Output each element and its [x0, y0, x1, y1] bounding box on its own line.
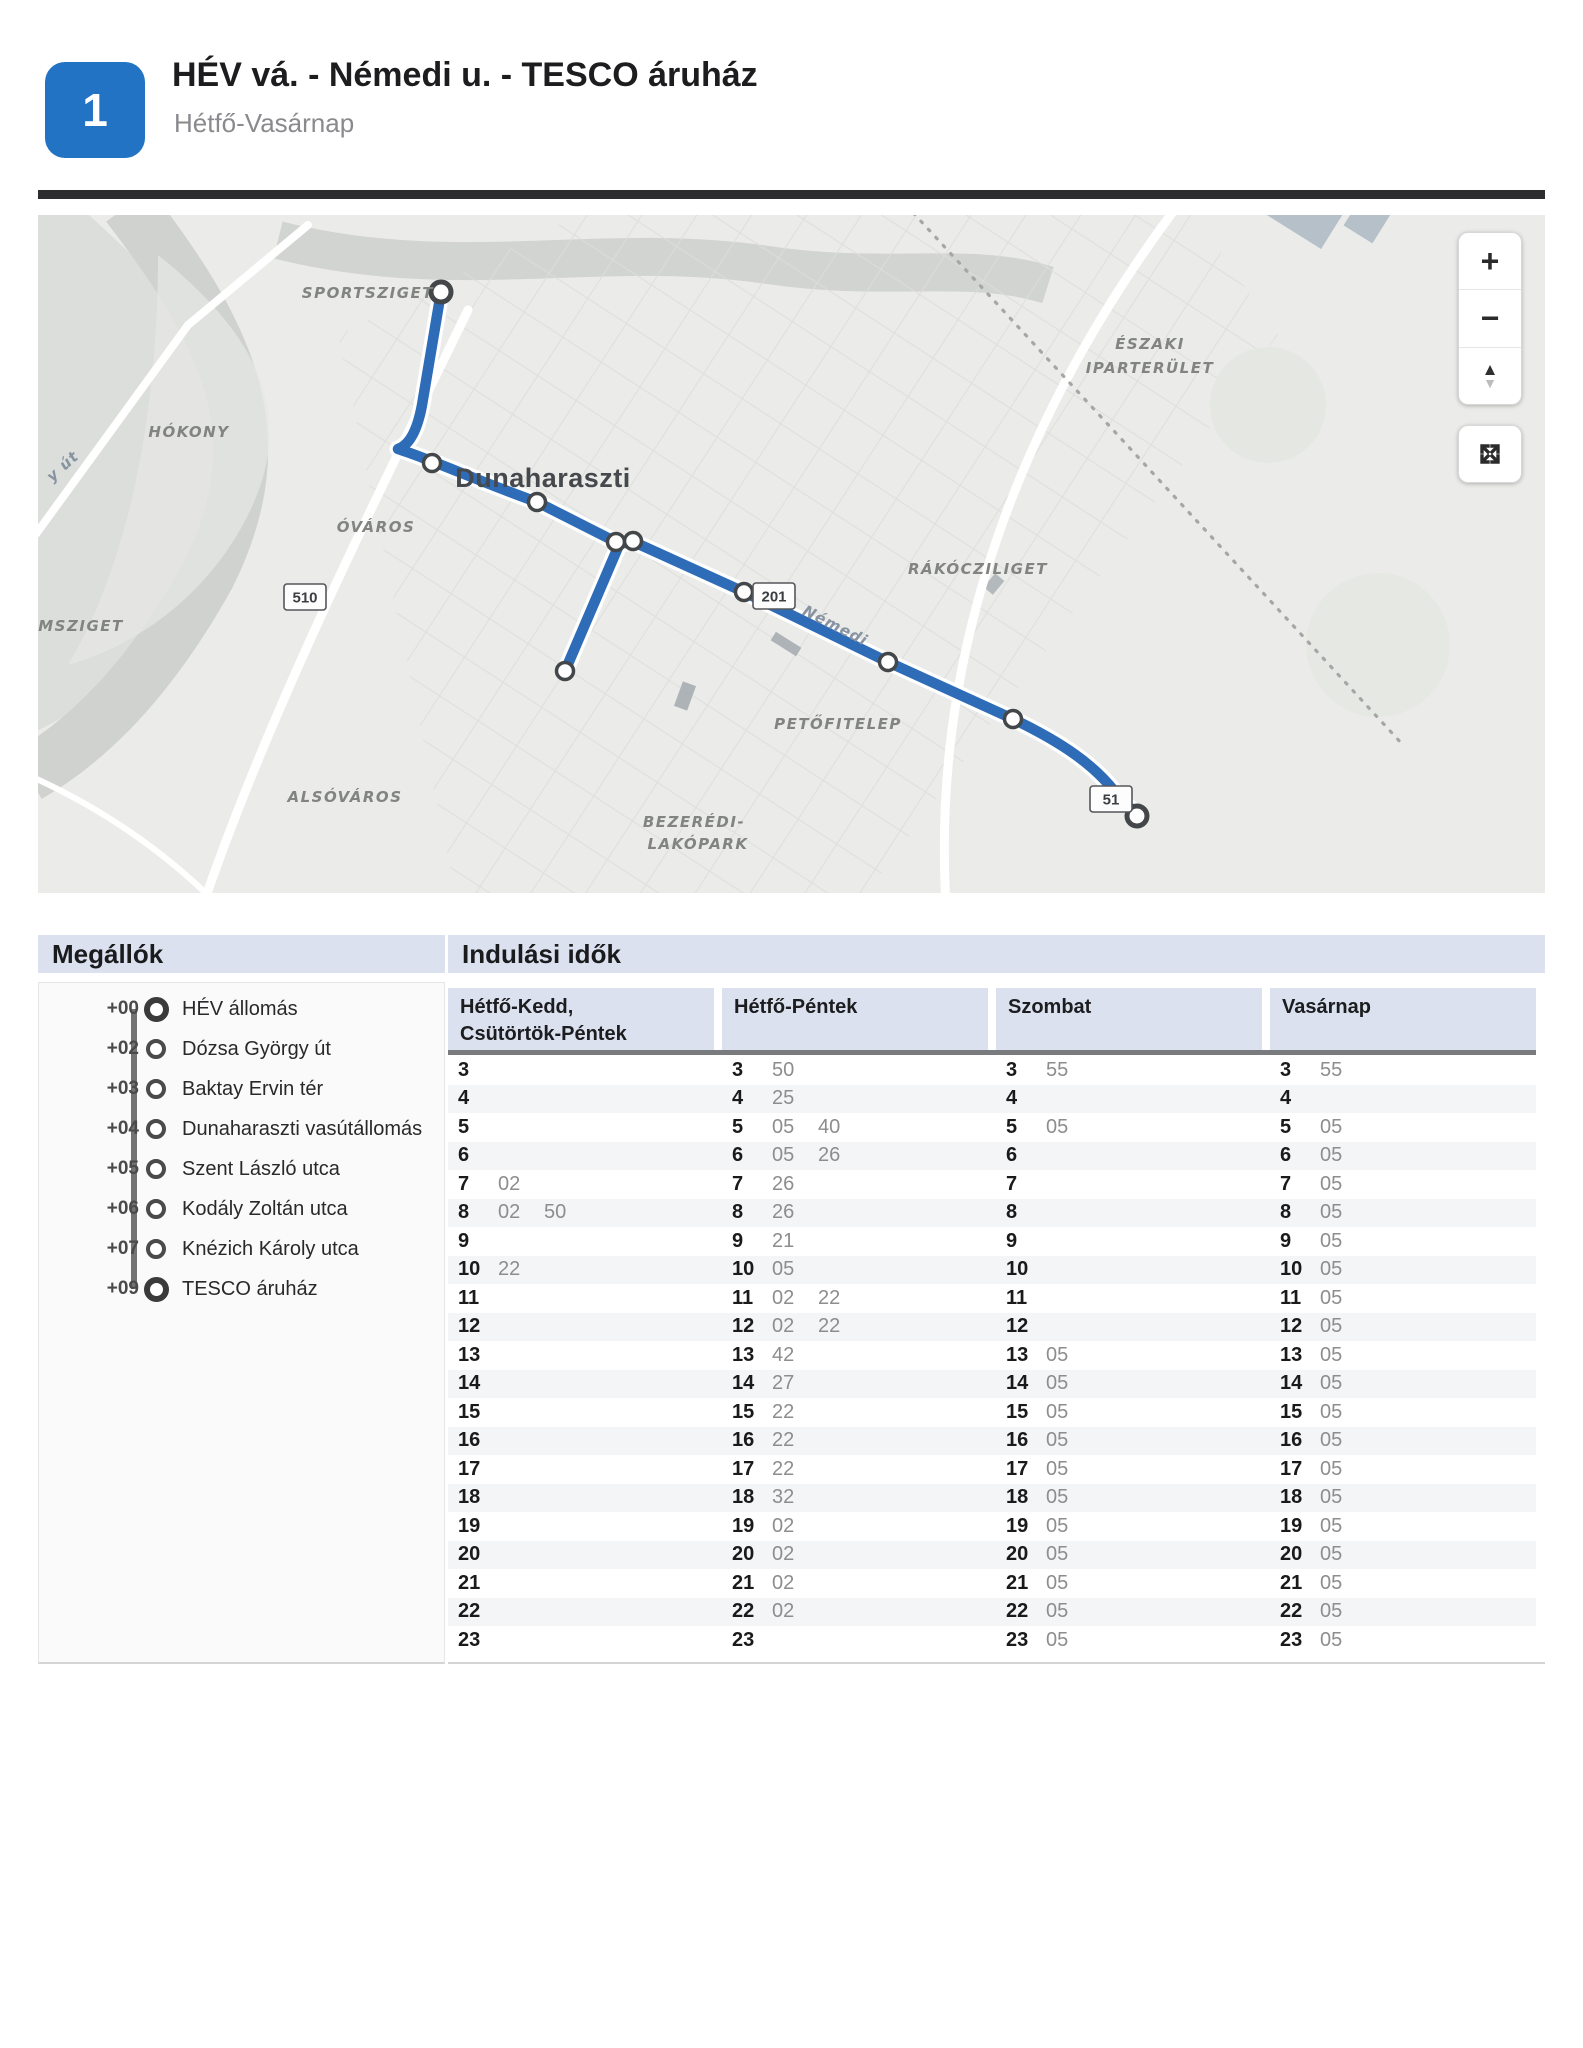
- hour-label: 6: [448, 1144, 498, 1167]
- map-stop-marker: [529, 494, 546, 511]
- stop-offset: +03: [71, 1078, 139, 1100]
- timetable-row: 20200220052005: [448, 1541, 1536, 1570]
- minute-value: 22: [772, 1458, 818, 1481]
- minute-value: 05: [1320, 1230, 1366, 1253]
- hour-label: 18: [996, 1486, 1046, 1509]
- timetable-cell: 505: [996, 1113, 1262, 1142]
- hour-label: 18: [1270, 1486, 1320, 1509]
- timetable-panel: Hétfő-Kedd,Csütörtök-PéntekHétfő-PéntekS…: [448, 982, 1545, 1664]
- minute-value: 05: [1320, 1458, 1366, 1481]
- minute-value: 02: [772, 1572, 818, 1595]
- minute-value: 05: [1046, 1572, 1092, 1595]
- minute-value: 26: [772, 1201, 818, 1224]
- hour-label: 10: [722, 1258, 772, 1281]
- svg-text:51: 51: [1103, 792, 1120, 809]
- minus-icon: −: [1481, 300, 1500, 337]
- arrow-down-icon: ▼: [1483, 376, 1497, 390]
- minute-value: 26: [772, 1173, 818, 1196]
- hour-label: 16: [722, 1429, 772, 1452]
- map-area-label: HÓKONY: [148, 422, 230, 441]
- hour-label: 15: [1270, 1401, 1320, 1424]
- stop-node-icon: [146, 1199, 166, 1219]
- timetable-cell: 1505: [1270, 1398, 1536, 1427]
- stop-list-item: +03Baktay Ervin tér: [39, 1069, 444, 1109]
- hour-label: 8: [722, 1201, 772, 1224]
- hour-label: 10: [996, 1258, 1046, 1281]
- minute-value: 32: [772, 1486, 818, 1509]
- timetable-cell: 1505: [996, 1398, 1262, 1427]
- hour-label: 19: [722, 1515, 772, 1538]
- timetable-cell: 1205: [1270, 1313, 1536, 1342]
- minute-value: 02: [772, 1287, 818, 1310]
- hour-label: 15: [722, 1401, 772, 1424]
- timetable-cell: 505: [1270, 1113, 1536, 1142]
- hour-label: 11: [1270, 1287, 1320, 1310]
- minute-value: 02: [498, 1173, 544, 1196]
- hour-label: 6: [996, 1144, 1046, 1167]
- timetable-cell: 10: [996, 1256, 1262, 1285]
- hour-label: 4: [996, 1087, 1046, 1110]
- timetable-cell: 4: [1270, 1085, 1536, 1114]
- timetable-cell: 22: [448, 1598, 714, 1627]
- timetable-cell: 110222: [722, 1284, 988, 1313]
- stop-name: Dunaharaszti vasútállomás: [182, 1118, 422, 1141]
- stop-name: TESCO áruház: [182, 1278, 318, 1301]
- zoom-in-button[interactable]: +: [1459, 233, 1521, 289]
- timetable-cell: 605: [1270, 1142, 1536, 1171]
- stop-list-item: +00HÉV állomás: [39, 989, 444, 1029]
- timetable-row: 232323052305: [448, 1626, 1536, 1655]
- timetable-row: 3350355355: [448, 1056, 1536, 1085]
- timetable-cell: 1305: [996, 1341, 1262, 1370]
- hour-label: 5: [722, 1116, 772, 1139]
- timetable-column-header: Vasárnap: [1270, 988, 1536, 1050]
- timetable-row: 802508268805: [448, 1199, 1536, 1228]
- timetable-cell: 1105: [1270, 1284, 1536, 1313]
- minute-value: 40: [818, 1116, 864, 1139]
- map-stop-marker: [1005, 711, 1022, 728]
- hour-label: 7: [448, 1173, 498, 1196]
- timetable-cell: 23: [448, 1626, 714, 1655]
- timetable-column-header: Szombat: [996, 988, 1262, 1050]
- hour-label: 23: [448, 1629, 498, 1652]
- timetable-cell: 2105: [996, 1569, 1262, 1598]
- minute-value: 25: [772, 1087, 818, 1110]
- minute-value: 02: [498, 1201, 544, 1224]
- minute-value: 50: [544, 1201, 590, 1224]
- timetable-cell: 1005: [1270, 1256, 1536, 1285]
- hour-label: 16: [1270, 1429, 1320, 1452]
- hour-label: 17: [448, 1458, 498, 1481]
- timetable-cell: 7: [996, 1170, 1262, 1199]
- hour-label: 23: [996, 1629, 1046, 1652]
- timetable-cell: 425: [722, 1085, 988, 1114]
- timetable-cell: 1902: [722, 1512, 988, 1541]
- timetable-cell: 1905: [1270, 1512, 1536, 1541]
- map-area-label: RÁKÓCZILIGET: [908, 559, 1048, 578]
- hour-label: 11: [448, 1287, 498, 1310]
- timetable-cell: 1522: [722, 1398, 988, 1427]
- minute-value: 22: [818, 1315, 864, 1338]
- hour-label: 9: [448, 1230, 498, 1253]
- timetable-row: 16162216051605: [448, 1427, 1536, 1456]
- timetable-cell: 1705: [1270, 1455, 1536, 1484]
- timetable-cell: 1605: [1270, 1427, 1536, 1456]
- route-number: 1: [82, 83, 108, 137]
- timetable-cell: 2305: [996, 1626, 1262, 1655]
- timetable-cell: 13: [448, 1341, 714, 1370]
- map-area-label: SPORTSZIGET: [302, 284, 434, 302]
- hour-label: 10: [1270, 1258, 1320, 1281]
- timetable-cell: 1722: [722, 1455, 988, 1484]
- timetable-cell: 1805: [996, 1484, 1262, 1513]
- map-stop-marker: [557, 663, 574, 680]
- timetable-cell: 5: [448, 1113, 714, 1142]
- timetable-cell: 355: [996, 1056, 1262, 1085]
- timetable-cell: 1342: [722, 1341, 988, 1370]
- schedule-board: Megállók Indulási idők +00HÉV állomás+02…: [38, 935, 1545, 1675]
- timetable-cell: 1405: [1270, 1370, 1536, 1399]
- hour-label: 12: [1270, 1315, 1320, 1338]
- map-zoom-control: + − ▲ ▼: [1458, 232, 1522, 405]
- times-section-header: Indulási idők: [448, 935, 1545, 973]
- hour-label: 21: [1270, 1572, 1320, 1595]
- minute-value: 22: [772, 1429, 818, 1452]
- stop-offset: +09: [71, 1278, 139, 1300]
- hour-label: 15: [448, 1401, 498, 1424]
- minute-value: 21: [772, 1230, 818, 1253]
- hour-label: 20: [1270, 1543, 1320, 1566]
- map-area-label: BEZERÉDI-: [643, 812, 745, 831]
- stop-node-icon: [144, 1277, 169, 1302]
- header-divider: [38, 190, 1545, 199]
- hour-label: 19: [448, 1515, 498, 1538]
- hour-label: 7: [996, 1173, 1046, 1196]
- timetable-cell: 1405: [996, 1370, 1262, 1399]
- stop-list-item: +07Knézich Károly utca: [39, 1229, 444, 1269]
- timetable-cell: 702: [448, 1170, 714, 1199]
- route-number-badge: 1: [45, 62, 145, 158]
- hour-label: 8: [1270, 1201, 1320, 1224]
- tilt-button[interactable]: ▲ ▼: [1459, 347, 1521, 404]
- timetable-cell: 17: [448, 1455, 714, 1484]
- minute-value: 05: [1320, 1429, 1366, 1452]
- map-area-label: ALSÓVÁROS: [287, 787, 403, 806]
- timetable-row: 12120222121205: [448, 1313, 1536, 1342]
- minute-value: 05: [1320, 1401, 1366, 1424]
- hour-label: 23: [1270, 1629, 1320, 1652]
- hour-label: 10: [448, 1258, 498, 1281]
- stop-offset: +05: [71, 1158, 139, 1180]
- map-area-label: OMSZIGET: [38, 617, 124, 635]
- hour-label: 9: [722, 1230, 772, 1253]
- minute-value: 05: [1046, 1401, 1092, 1424]
- minute-value: 05: [772, 1116, 818, 1139]
- hour-label: 14: [996, 1372, 1046, 1395]
- stop-name: Baktay Ervin tér: [182, 1078, 323, 1101]
- minute-value: 02: [772, 1543, 818, 1566]
- stop-name: Dózsa György út: [182, 1038, 331, 1061]
- minute-value: 05: [1046, 1629, 1092, 1652]
- timetable-row: 99219905: [448, 1227, 1536, 1256]
- minute-value: 05: [1046, 1600, 1092, 1623]
- timetable-cell: 2205: [1270, 1598, 1536, 1627]
- hour-label: 12: [448, 1315, 498, 1338]
- minute-value: 05: [1046, 1429, 1092, 1452]
- hour-label: 18: [722, 1486, 772, 1509]
- timetable-cell: 2205: [996, 1598, 1262, 1627]
- timetable-cell: 20: [448, 1541, 714, 1570]
- timetable-cell: 18: [448, 1484, 714, 1513]
- timetable-cell: 3: [448, 1056, 714, 1085]
- timetable-cell: 4: [996, 1085, 1262, 1114]
- timetable-cell: 1427: [722, 1370, 988, 1399]
- hour-label: 16: [448, 1429, 498, 1452]
- hour-label: 8: [996, 1201, 1046, 1224]
- timetable-cell: 8: [996, 1199, 1262, 1228]
- minute-value: 05: [1046, 1116, 1092, 1139]
- minute-value: 26: [818, 1144, 864, 1167]
- timetable-cell: 1622: [722, 1427, 988, 1456]
- timetable-cell: 1005: [722, 1256, 988, 1285]
- timetable-cell: 1905: [996, 1512, 1262, 1541]
- stop-node-icon: [146, 1039, 166, 1059]
- minute-value: 05: [1320, 1287, 1366, 1310]
- hour-label: 3: [722, 1059, 772, 1082]
- timetable-row: 14142714051405: [448, 1370, 1536, 1399]
- map-area-label: ÓVÁROS: [337, 517, 416, 536]
- timetable-cell: 11: [996, 1284, 1262, 1313]
- hour-label: 20: [996, 1543, 1046, 1566]
- timetable-row: 19190219051905: [448, 1512, 1536, 1541]
- hour-label: 8: [448, 1201, 498, 1224]
- stop-offset: +06: [71, 1198, 139, 1220]
- timetable-cell: 2202: [722, 1598, 988, 1627]
- minute-value: 05: [1320, 1344, 1366, 1367]
- timetable-cell: 12: [448, 1313, 714, 1342]
- timetable-cell: 23: [722, 1626, 988, 1655]
- stop-list-item: +05Szent László utca: [39, 1149, 444, 1189]
- hour-label: 13: [1270, 1344, 1320, 1367]
- hour-label: 6: [1270, 1144, 1320, 1167]
- stop-node-icon: [146, 1079, 166, 1099]
- hour-label: 17: [996, 1458, 1046, 1481]
- minute-value: 05: [1320, 1486, 1366, 1509]
- timetable-cell: 80250: [448, 1199, 714, 1228]
- map-stop-marker: [736, 584, 753, 601]
- map-area-label: ÉSZAKI: [1115, 334, 1185, 353]
- minute-value: 02: [772, 1315, 818, 1338]
- stops-section-header: Megállók: [38, 935, 445, 973]
- minute-value: 05: [1320, 1600, 1366, 1623]
- hour-label: 20: [722, 1543, 772, 1566]
- hour-label: 7: [722, 1173, 772, 1196]
- timetable-cell: 11: [448, 1284, 714, 1313]
- timetable-cell: 355: [1270, 1056, 1536, 1085]
- hour-label: 17: [722, 1458, 772, 1481]
- map-canvas: 51020151 SPORTSZIGETHÓKONYÓVÁROSOMSZIGET…: [38, 215, 1545, 893]
- minute-value: 55: [1046, 1059, 1092, 1082]
- page-title: HÉV vá. - Némedi u. - TESCO áruház: [172, 56, 758, 95]
- minute-value: 05: [1046, 1372, 1092, 1395]
- hour-label: 13: [448, 1344, 498, 1367]
- stop-node-icon: [146, 1159, 166, 1179]
- hour-label: 11: [722, 1287, 772, 1310]
- stop-list-item: +06Kodály Zoltán utca: [39, 1189, 444, 1229]
- timetable-cell: 2102: [722, 1569, 988, 1598]
- map-stop-marker: [608, 534, 625, 551]
- timetable-header-underline: [448, 1050, 1536, 1055]
- stop-name: Szent László utca: [182, 1158, 340, 1181]
- minute-value: 22: [818, 1287, 864, 1310]
- hour-label: 12: [722, 1315, 772, 1338]
- timetable-cell: 12: [996, 1313, 1262, 1342]
- hour-label: 9: [996, 1230, 1046, 1253]
- plus-icon: +: [1481, 243, 1500, 280]
- hour-label: 13: [996, 1344, 1046, 1367]
- timetable-row: 6605266605: [448, 1142, 1536, 1171]
- stop-node-icon: [146, 1239, 166, 1259]
- minute-value: 05: [1046, 1486, 1092, 1509]
- minute-value: 05: [772, 1144, 818, 1167]
- timetable-column-header: Hétfő-Kedd,Csütörtök-Péntek: [448, 988, 714, 1050]
- minute-value: 05: [1046, 1344, 1092, 1367]
- zoom-out-button[interactable]: −: [1459, 289, 1521, 346]
- map-area-label: LAKÓPARK: [648, 834, 749, 853]
- timetable-cell: 1022: [448, 1256, 714, 1285]
- minute-value: 05: [1046, 1543, 1092, 1566]
- minute-value: 05: [1320, 1201, 1366, 1224]
- timetable-cell: 2105: [1270, 1569, 1536, 1598]
- timetable-cell: 2005: [996, 1541, 1262, 1570]
- minute-value: 05: [1320, 1258, 1366, 1281]
- map-stop-marker: [424, 455, 441, 472]
- route-map[interactable]: 51020151 SPORTSZIGETHÓKONYÓVÁROSOMSZIGET…: [38, 215, 1545, 893]
- map-stop-marker: [431, 282, 451, 302]
- hour-label: 5: [1270, 1116, 1320, 1139]
- hour-label: 21: [448, 1572, 498, 1595]
- timetable-cell: 921: [722, 1227, 988, 1256]
- timetable-cell: 1605: [996, 1427, 1262, 1456]
- stop-list-item: +04Dunaharaszti vasútállomás: [39, 1109, 444, 1149]
- timetable-cell: 60526: [722, 1142, 988, 1171]
- hour-label: 19: [1270, 1515, 1320, 1538]
- timetable-row: 13134213051305: [448, 1341, 1536, 1370]
- minute-value: 05: [1320, 1572, 1366, 1595]
- timetable-row: 7027267705: [448, 1170, 1536, 1199]
- hour-label: 22: [1270, 1600, 1320, 1623]
- timetable-cell: 9: [996, 1227, 1262, 1256]
- hour-label: 20: [448, 1543, 498, 1566]
- stops-panel: +00HÉV állomás+02Dózsa György út+03Bakta…: [38, 982, 445, 1664]
- minute-value: 05: [1046, 1458, 1092, 1481]
- map-town-label: Dunaharaszti: [455, 463, 631, 493]
- road-badge: 201: [753, 583, 795, 609]
- hour-label: 4: [448, 1087, 498, 1110]
- stop-offset: +02: [71, 1038, 139, 1060]
- minute-value: 05: [1320, 1372, 1366, 1395]
- minute-value: 05: [1320, 1543, 1366, 1566]
- minute-value: 22: [498, 1258, 544, 1281]
- minute-value: 22: [772, 1401, 818, 1424]
- timetable-cell: 50540: [722, 1113, 988, 1142]
- stop-name: HÉV állomás: [182, 998, 298, 1021]
- map-stop-marker: [880, 654, 897, 671]
- stop-list-item: +09TESCO áruház: [39, 1269, 444, 1309]
- hour-label: 3: [1270, 1059, 1320, 1082]
- minute-value: 55: [1320, 1059, 1366, 1082]
- stop-list-item: +02Dózsa György út: [39, 1029, 444, 1069]
- timetable-cell: 826: [722, 1199, 988, 1228]
- timetable-cell: 4: [448, 1085, 714, 1114]
- minute-value: 42: [772, 1344, 818, 1367]
- stop-offset: +00: [71, 998, 139, 1020]
- hour-label: 22: [722, 1600, 772, 1623]
- hour-label: 9: [1270, 1230, 1320, 1253]
- timetable-cell: 2005: [1270, 1541, 1536, 1570]
- hour-label: 3: [448, 1059, 498, 1082]
- stop-offset: +07: [71, 1238, 139, 1260]
- road-badge: 51: [1090, 786, 1132, 812]
- timetable-row: 11110222111105: [448, 1284, 1536, 1313]
- hour-label: 11: [996, 1287, 1046, 1310]
- minute-value: 27: [772, 1372, 818, 1395]
- timetable-cell: 2002: [722, 1541, 988, 1570]
- minute-value: 02: [772, 1600, 818, 1623]
- hour-label: 19: [996, 1515, 1046, 1538]
- timetable-cell: 905: [1270, 1227, 1536, 1256]
- timetable-cell: 6: [448, 1142, 714, 1171]
- timetable-row: 22220222052205: [448, 1598, 1536, 1627]
- timetable-cell: 805: [1270, 1199, 1536, 1228]
- timetable-cell: 6: [996, 1142, 1262, 1171]
- timetable-cell: 16: [448, 1427, 714, 1456]
- timetable-cell: 1805: [1270, 1484, 1536, 1513]
- timetable-cell: 19: [448, 1512, 714, 1541]
- stop-name: Kodály Zoltán utca: [182, 1198, 348, 1221]
- hour-label: 12: [996, 1315, 1046, 1338]
- svg-text:201: 201: [761, 589, 786, 606]
- timetable-cell: 9: [448, 1227, 714, 1256]
- page-subtitle: Hétfő-Vasárnap: [174, 108, 354, 139]
- hour-label: 4: [1270, 1087, 1320, 1110]
- minute-value: 05: [772, 1258, 818, 1281]
- minute-value: 05: [1320, 1515, 1366, 1538]
- hour-label: 5: [996, 1116, 1046, 1139]
- hour-label: 4: [722, 1087, 772, 1110]
- hour-label: 21: [996, 1572, 1046, 1595]
- hour-label: 22: [448, 1600, 498, 1623]
- svg-text:510: 510: [292, 590, 317, 607]
- map-area-label: PETŐFITELEP: [774, 713, 902, 733]
- hour-label: 23: [722, 1629, 772, 1652]
- hour-label: 15: [996, 1401, 1046, 1424]
- fullscreen-button[interactable]: [1458, 425, 1522, 483]
- hour-label: 14: [448, 1372, 498, 1395]
- stop-node-icon: [144, 997, 169, 1022]
- timetable-cell: 1305: [1270, 1341, 1536, 1370]
- hour-label: 6: [722, 1144, 772, 1167]
- hour-label: 3: [996, 1059, 1046, 1082]
- timetable-row: 17172217051705: [448, 1455, 1536, 1484]
- timetable-cell: 350: [722, 1056, 988, 1085]
- hour-label: 13: [722, 1344, 772, 1367]
- timetable-cell: 705: [1270, 1170, 1536, 1199]
- map-stop-marker: [625, 533, 642, 550]
- timetable-cell: 15: [448, 1398, 714, 1427]
- minute-value: 02: [772, 1515, 818, 1538]
- fullscreen-icon: [1476, 440, 1504, 468]
